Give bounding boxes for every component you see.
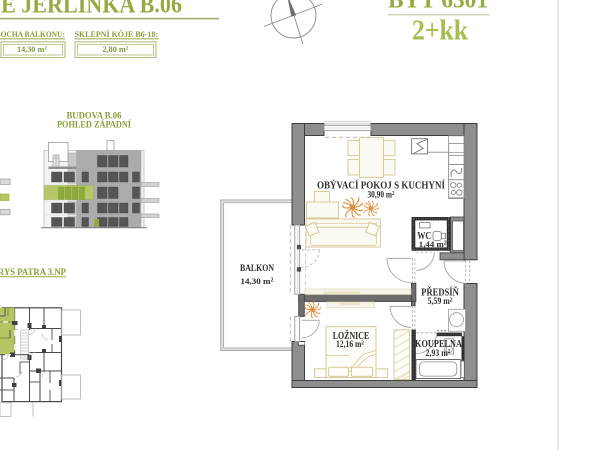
svg-text:BALKON: BALKON [240, 263, 274, 274]
svg-text:2,93 m2: 2,93 m2 [426, 348, 451, 358]
svg-text:PLOCHA BALKONU:: PLOCHA BALKONU: [0, 29, 65, 39]
svg-text:5,59 m2: 5,59 m2 [428, 296, 453, 306]
svg-text:1,44 m2: 1,44 m2 [419, 239, 447, 249]
svg-text:14,30 m2: 14,30 m2 [17, 45, 47, 54]
svg-text:SKLEPNÍ KÓJE B6-18:: SKLEPNÍ KÓJE B6-18: [75, 29, 159, 39]
svg-text:30,90 m2: 30,90 m2 [368, 190, 395, 200]
svg-text:2+kk: 2+kk [412, 16, 468, 47]
svg-text:14,30 m2: 14,30 m2 [241, 276, 274, 286]
svg-text:2,80 m2: 2,80 m2 [103, 45, 129, 54]
svg-text:POHLED ZÁPADNÍ: POHLED ZÁPADNÍ [57, 120, 131, 130]
svg-text:BYT 6301: BYT 6301 [388, 0, 488, 13]
svg-text:E JERLINKA B.06: E JERLINKA B.06 [1, 0, 182, 19]
svg-text:12,16 m2: 12,16 m2 [336, 339, 364, 349]
svg-text:PŮDORYS PATRA 3.NP: PŮDORYS PATRA 3.NP [0, 267, 66, 277]
